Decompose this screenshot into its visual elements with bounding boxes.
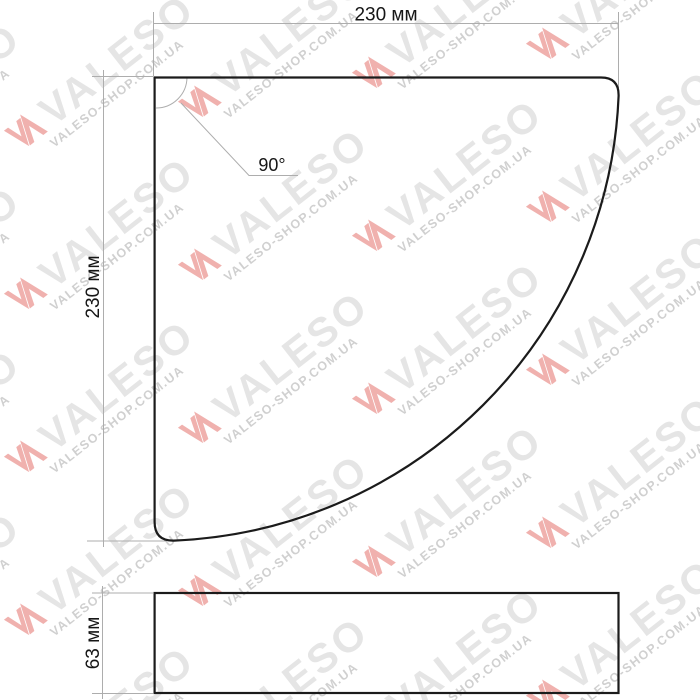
watermark-site-text: VALESO-SHOP.COM.UA xyxy=(221,479,384,610)
watermark-tile: VALESOVALESO-SHOP.COM.UA xyxy=(518,549,700,700)
valeso-logo-icon xyxy=(0,266,52,319)
watermark-brand-text: VALESO xyxy=(557,230,700,369)
watermark-site-text: VALESO-SHOP.COM.UA xyxy=(395,613,558,700)
watermark-brand-text: VALESO xyxy=(383,96,548,235)
watermark-tile: VALESOVALESO-SHOP.COM.UA xyxy=(344,89,558,274)
watermark-site-text: VALESO-SHOP.COM.UA xyxy=(395,450,558,581)
watermark-brand-text: VALESO xyxy=(35,154,200,293)
watermark-brand-text: VALESO xyxy=(0,183,26,322)
watermark-tile: VALESOVALESO-SHOP.COM.UA xyxy=(0,502,36,687)
watermark-tile: VALESOVALESO-SHOP.COM.UA xyxy=(344,415,558,600)
watermark-tile: VALESOVALESO-SHOP.COM.UA xyxy=(518,60,700,245)
valeso-logo-icon xyxy=(346,371,399,424)
watermark-tile: VALESOVALESO-SHOP.COM.UA xyxy=(0,473,210,658)
watermark-tile: VALESOVALESO-SHOP.COM.UA xyxy=(0,147,210,332)
watermark-tile: VALESOVALESO-SHOP.COM.UA xyxy=(0,13,36,198)
watermark-site-text: VALESO-SHOP.COM.UA xyxy=(221,153,384,284)
watermark-brand-text: VALESO xyxy=(209,614,374,700)
watermark-tile: VALESOVALESO-SHOP.COM.UA xyxy=(170,0,384,140)
technical-drawing-canvas: 230 мм 230 мм 90° 63 мм xyxy=(0,0,700,700)
valeso-logo-icon xyxy=(346,208,399,261)
watermark-brand-text: VALESO xyxy=(209,288,374,427)
valeso-logo-icon xyxy=(346,45,399,98)
watermark-brand-text: VALESO xyxy=(209,451,374,590)
valeso-logo-icon xyxy=(172,237,225,290)
watermark-tile: VALESOVALESO-SHOP.COM.UA xyxy=(518,386,700,571)
valeso-logo-icon xyxy=(520,16,573,69)
watermark-layer: VALESOVALESO-SHOP.COM.UAVALESOVALESO-SHO… xyxy=(0,0,700,700)
watermark-brand-text: VALESO xyxy=(383,422,548,561)
watermark-site-text: VALESO-SHOP.COM.UA xyxy=(569,95,700,226)
valeso-logo-icon xyxy=(172,74,225,127)
valeso-logo-icon xyxy=(520,179,573,232)
watermark-brand-text: VALESO xyxy=(0,20,26,159)
corner-angle-label: 90° xyxy=(258,155,285,175)
watermark-tile: VALESOVALESO-SHOP.COM.UA xyxy=(170,444,384,629)
watermark-tile: VALESOVALESO-SHOP.COM.UA xyxy=(170,281,384,466)
watermark-site-text: VALESO-SHOP.COM.UA xyxy=(395,124,558,255)
watermark-site-text: VALESO-SHOP.COM.UA xyxy=(569,584,700,700)
valeso-logo-icon xyxy=(520,668,573,700)
watermark-site-text: VALESO-SHOP.COM.UA xyxy=(221,642,384,700)
watermark-brand-text: VALESO xyxy=(557,0,700,43)
watermark-brand-text: VALESO xyxy=(383,0,548,72)
watermark-tile: VALESOVALESO-SHOP.COM.UA xyxy=(344,252,558,437)
watermark-site-text: VALESO-SHOP.COM.UA xyxy=(47,19,210,150)
watermark-tile: VALESOVALESO-SHOP.COM.UA xyxy=(344,0,558,111)
watermark-brand-text: VALESO xyxy=(35,0,200,130)
watermark-tile: VALESOVALESO-SHOP.COM.UA xyxy=(0,636,210,700)
watermark-site-text: VALESO-SHOP.COM.UA xyxy=(221,316,384,447)
watermark-tile: VALESOVALESO-SHOP.COM.UA xyxy=(344,578,558,700)
watermark-tile: VALESOVALESO-SHOP.COM.UA xyxy=(0,0,210,169)
valeso-logo-icon xyxy=(520,342,573,395)
watermark-brand-text: VALESO xyxy=(35,643,200,700)
watermark-brand-text: VALESO xyxy=(557,67,700,206)
width-dimension-label: 230 мм xyxy=(354,5,417,26)
watermark-tile: VALESOVALESO-SHOP.COM.UA xyxy=(170,607,384,700)
valeso-logo-icon xyxy=(0,592,52,645)
watermark-brand-text: VALESO xyxy=(383,585,548,700)
side-view-outline xyxy=(155,593,619,693)
angle-leader xyxy=(181,103,298,176)
watermark-brand-text: VALESO xyxy=(35,480,200,619)
watermark-brand-text: VALESO xyxy=(0,509,26,648)
watermark-site-text: VALESO-SHOP.COM.UA xyxy=(0,374,36,505)
watermark-brand-text: VALESO xyxy=(557,556,700,695)
watermark-site-text: VALESO-SHOP.COM.UA xyxy=(47,508,210,639)
watermark-tile: VALESOVALESO-SHOP.COM.UA xyxy=(0,339,36,524)
watermark-brand-text: VALESO xyxy=(209,0,374,101)
valeso-logo-icon xyxy=(172,400,225,453)
watermark-site-text: VALESO-SHOP.COM.UA xyxy=(221,0,384,121)
watermark-tile: VALESOVALESO-SHOP.COM.UA xyxy=(0,310,210,495)
watermark-site-text: VALESO-SHOP.COM.UA xyxy=(395,0,558,92)
watermark-brand-text: VALESO xyxy=(35,317,200,456)
outlines-group xyxy=(155,78,619,694)
watermark-brand-text: VALESO xyxy=(383,259,548,398)
valeso-logo-icon xyxy=(346,534,399,587)
watermark-site-text: VALESO-SHOP.COM.UA xyxy=(47,345,210,476)
thickness-dimension-label: 63 мм xyxy=(83,617,104,670)
watermark-brand-text: VALESO xyxy=(557,393,700,532)
watermark-site-text: VALESO-SHOP.COM.UA xyxy=(47,182,210,313)
watermark-site-text: VALESO-SHOP.COM.UA xyxy=(569,0,700,63)
watermark-site-text: VALESO-SHOP.COM.UA xyxy=(47,671,210,700)
watermark-brand-text: VALESO xyxy=(0,346,26,485)
watermark-site-text: VALESO-SHOP.COM.UA xyxy=(569,258,700,389)
watermark-site-text: VALESO-SHOP.COM.UA xyxy=(569,421,700,552)
angle-arc xyxy=(156,78,187,109)
valeso-logo-icon xyxy=(0,429,52,482)
depth-dimension-label: 230 мм xyxy=(83,255,104,318)
valeso-logo-icon xyxy=(0,103,52,156)
watermark-brand-text: VALESO xyxy=(209,125,374,264)
top-view-quarter-shelf-outline xyxy=(155,78,619,541)
watermark-tile: VALESOVALESO-SHOP.COM.UA xyxy=(518,0,700,82)
watermark-site-text: VALESO-SHOP.COM.UA xyxy=(0,537,36,668)
watermark-tile: VALESOVALESO-SHOP.COM.UA xyxy=(0,176,36,361)
watermark-tile: VALESOVALESO-SHOP.COM.UA xyxy=(518,223,700,408)
valeso-logo-icon xyxy=(172,563,225,616)
product-dimension-drawing: VALESOVALESO-SHOP.COM.UAVALESOVALESO-SHO… xyxy=(0,0,700,700)
dimension-lines-group xyxy=(87,12,619,699)
watermark-tile: VALESOVALESO-SHOP.COM.UA xyxy=(170,118,384,303)
valeso-logo-icon xyxy=(520,505,573,558)
watermark-site-text: VALESO-SHOP.COM.UA xyxy=(395,287,558,418)
watermark-site-text: VALESO-SHOP.COM.UA xyxy=(0,48,36,179)
watermark-site-text: VALESO-SHOP.COM.UA xyxy=(0,211,36,342)
